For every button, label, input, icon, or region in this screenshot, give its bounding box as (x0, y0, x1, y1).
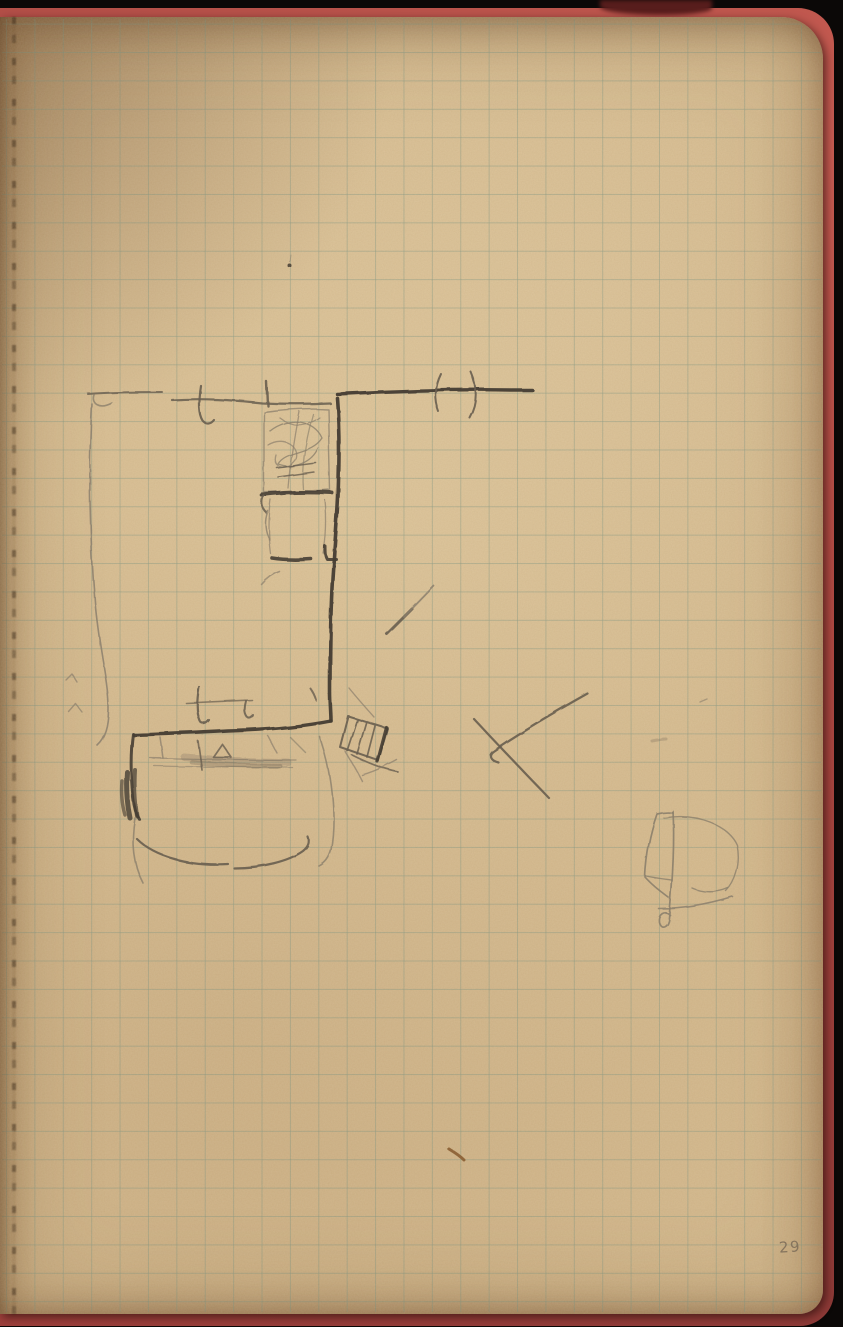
binding-gutter-shadow (0, 17, 36, 1314)
page-number: 29 (767, 1236, 812, 1257)
sketchbook-scan: 29 (0, 0, 843, 1327)
binding-crease (12, 17, 16, 1314)
notebook-page: 29 (0, 17, 823, 1314)
graph-grid (2, 19, 821, 1312)
